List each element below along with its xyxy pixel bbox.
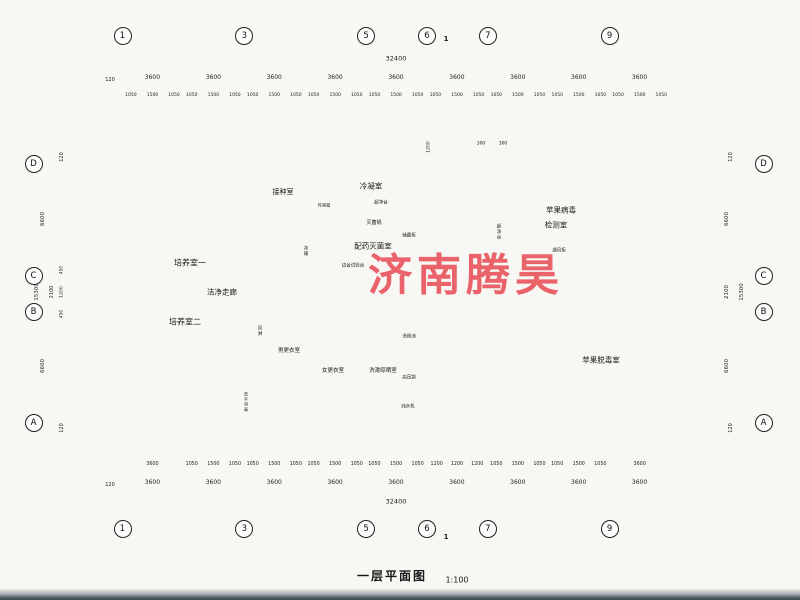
dimension-value: 1500 [383, 93, 408, 98]
dimension-value: 3600 [426, 74, 487, 81]
dimension-value: 1050 [244, 93, 262, 98]
grid-bubble-top-9: 9 [601, 27, 619, 45]
room-label-virus-test-line1: 苹果病毒 [546, 207, 576, 216]
grid-bubble-bottom-7: 7 [479, 520, 497, 538]
dimension-value: 1050 [366, 462, 384, 467]
dimension-value: 1050 [348, 462, 366, 467]
equip-label-water-purifier: 纯水机 [401, 404, 415, 409]
dimension-value: 1050 [183, 462, 201, 467]
dim-left-450-top: 450 [60, 266, 65, 275]
drawing-scale: 1:100 [445, 575, 468, 584]
dim-left-120-bottom: 120 [59, 423, 65, 433]
room-label-condensing: 冷凝室 [360, 183, 383, 192]
grid-bubble-top-5: 5 [357, 27, 375, 45]
equip-label-pass-window: 传递窗 [318, 204, 331, 209]
dimension-value: 1050 [591, 462, 609, 467]
equip-label-clean-bench-small: 超净台 [374, 200, 388, 205]
dimension-value: 1500 [505, 93, 530, 98]
room-label-inoculation: 接种室 [273, 188, 294, 196]
dimension-value: 1500 [322, 462, 347, 467]
dim-right-15300: 15300 [739, 283, 745, 301]
dim-left-15300: 15300 [34, 283, 40, 301]
grid-bubble-left-A: A [25, 414, 43, 432]
grid-bubble-right-C: C [755, 267, 773, 285]
dimension-value: 1050 [548, 93, 566, 98]
dim-left-6600-top: 6600 [40, 212, 46, 226]
equip-label-hand-wash: 洗手消毒 [243, 392, 249, 413]
dimension-value: 1050 [244, 462, 262, 467]
dimension-value: 3600 [548, 479, 609, 486]
equip-label-side-bench: 边台试验台 [342, 263, 365, 268]
dimension-value: 3600 [426, 479, 487, 486]
equip-label-clean-bench: 超净台 [495, 224, 501, 241]
dim-left-6600-bottom: 6600 [40, 359, 46, 373]
dimension-value: 3600 [305, 74, 366, 81]
room-label-corridor: 洁净走廊 [207, 289, 237, 298]
dim-top-overall: 32400 [386, 55, 407, 62]
dimension-value: 1200 [467, 462, 487, 467]
dimension-value: 1500 [262, 93, 287, 98]
dimension-value: 1500 [566, 462, 591, 467]
grid-bubble-top-7: 7 [479, 27, 497, 45]
dimension-value: 1500 [140, 93, 165, 98]
grid-bubble-left-C: C [25, 267, 43, 285]
room-label-culture2: 培养室二 [169, 317, 201, 326]
dim-right-6600-top: 6600 [724, 212, 730, 226]
grid-bubble-left-B: B [25, 303, 43, 321]
room-label-men-changing: 男更衣室 [278, 348, 300, 354]
grid-bubble-left-D: D [25, 155, 43, 173]
dimension-value: 1050 [305, 462, 323, 467]
grid-bubble-top-3: 3 [235, 27, 253, 45]
dim-entrance-300-left: 300 [477, 141, 486, 146]
dim-right-120-bottom: 120 [728, 423, 734, 433]
dim-left-450-bottom: 450 [60, 310, 65, 319]
equip-label-wash-sink: 洗刷池 [402, 334, 416, 339]
dimension-value: 3600 [366, 74, 427, 81]
room-label-culture1: 培养室一 [174, 258, 206, 267]
section-mark-bottom-label: 1 [444, 533, 449, 541]
equip-label-fridge: 冰箱 [302, 246, 308, 257]
dimension-value: 3600 [244, 479, 305, 486]
room-label-virus-test-line2: 检测室 [545, 222, 568, 231]
dimension-value: 1050 [366, 93, 384, 98]
dimension-value: 1050 [287, 93, 305, 98]
dimension-value: 3600 [366, 479, 427, 486]
dim-right-120-top: 120 [728, 152, 734, 162]
dimension-value: 1500 [505, 462, 530, 467]
dim-left-120-top: 120 [59, 152, 65, 162]
dim-right-2100: 2100 [724, 285, 730, 299]
dim-bottom-bays-row: 360036003600360036003600360036003600 [122, 479, 670, 486]
dimension-value: 3600 [609, 74, 670, 81]
grid-bubble-bottom-1: 1 [114, 520, 132, 538]
dimension-value: 3600 [183, 479, 244, 486]
dimension-value: 1050 [531, 93, 549, 98]
dimension-value: 1500 [383, 462, 408, 467]
grid-bubble-right-B: B [755, 303, 773, 321]
dimension-value: 1500 [322, 93, 347, 98]
dimension-value: 1050 [591, 93, 609, 98]
dim-entrance-300-right: 300 [499, 141, 508, 146]
dimension-value: 1200 [447, 462, 467, 467]
floor-plan-photo: 1 3 5 6 7 9 1 3 5 6 7 9 D C B A D C B A … [0, 0, 800, 600]
dimension-value: 1050 [652, 93, 670, 98]
dimension-value: 1200 [427, 462, 447, 467]
dimension-value: 3600 [548, 74, 609, 81]
dimension-value: 1500 [201, 462, 226, 467]
grid-bubble-top-1: 1 [114, 27, 132, 45]
dimension-value: 3600 [305, 479, 366, 486]
photo-bottom-edge [0, 589, 800, 600]
dimension-value: 3600 [609, 479, 670, 486]
dimension-value: 1050 [287, 462, 305, 467]
dimension-value: 1500 [566, 93, 591, 98]
dimension-value: 1500 [262, 462, 287, 467]
room-label-women-changing: 女更衣室 [322, 368, 344, 374]
dimension-value: 1500 [444, 93, 469, 98]
dimension-value: 1050 [348, 93, 366, 98]
dimension-value: 1050 [183, 93, 201, 98]
dim-entrance-1200: 1200 [427, 141, 432, 152]
dimension-value: 1050 [305, 93, 323, 98]
dimension-value: 1500 [627, 93, 652, 98]
dim-bottom-overall: 32400 [386, 498, 407, 505]
dim-left-2100: 2100 [49, 286, 55, 299]
dimension-value: 1050 [531, 462, 549, 467]
dim-bottom-sub-row: 3600105015001050105015001050105015001050… [122, 462, 670, 467]
grid-bubble-right-D: D [755, 155, 773, 173]
dimension-value: 1050 [470, 93, 488, 98]
dimension-value: 1050 [165, 93, 183, 98]
grid-bubble-bottom-9: 9 [601, 520, 619, 538]
dimension-value: 1050 [226, 93, 244, 98]
grid-bubble-top-6: 6 [418, 27, 436, 45]
dimension-value: 1050 [427, 93, 445, 98]
dimension-value: 3600 [122, 479, 183, 486]
grid-bubble-right-A: A [755, 414, 773, 432]
grid-bubble-bottom-5: 5 [357, 520, 375, 538]
dimension-value: 3600 [244, 74, 305, 81]
dimension-value: 1050 [487, 93, 505, 98]
drawing-title: 一层平面图 [357, 570, 427, 584]
dimension-value: 1050 [409, 93, 427, 98]
dimension-value: 1050 [226, 462, 244, 467]
dimension-value: 1050 [409, 462, 427, 467]
equip-label-pressure-pot: 高压锅 [402, 375, 416, 380]
grid-bubble-bottom-6: 6 [418, 520, 436, 538]
dim-left-1200: 1200 [60, 286, 65, 297]
equip-label-air-shower: 风淋 [256, 326, 262, 337]
dimension-value: 1050 [487, 462, 505, 467]
watermark-text: 济南腾昊 [368, 254, 588, 298]
dimension-value: 1050 [609, 93, 627, 98]
dimension-value: 3600 [609, 462, 670, 467]
room-label-washing: 洗漱晾晒室 [369, 368, 397, 374]
dimension-value: 3600 [183, 74, 244, 81]
dimension-value: 3600 [122, 74, 183, 81]
dim-bottom-edge: 120 [105, 483, 115, 489]
equip-label-storage-cabinet: 储藏柜 [402, 233, 416, 238]
dimension-value: 1050 [548, 462, 566, 467]
dimension-value: 1500 [201, 93, 226, 98]
equip-label-autoclave: 灭菌锅 [366, 221, 381, 227]
room-label-detox: 苹果脱毒室 [582, 357, 620, 366]
dim-top-sub-row: 1050150010501050150010501050150010501050… [122, 93, 670, 98]
dim-top-edge: 120 [105, 78, 115, 84]
dim-right-6600-bottom: 6600 [724, 359, 730, 373]
dimension-value: 3600 [122, 462, 183, 467]
dimension-value: 3600 [487, 479, 548, 486]
section-mark-top-label: 1 [444, 35, 449, 43]
dimension-value: 1050 [122, 93, 140, 98]
dimension-value: 3600 [487, 74, 548, 81]
dim-top-bays-row: 360036003600360036003600360036003600 [122, 74, 670, 81]
